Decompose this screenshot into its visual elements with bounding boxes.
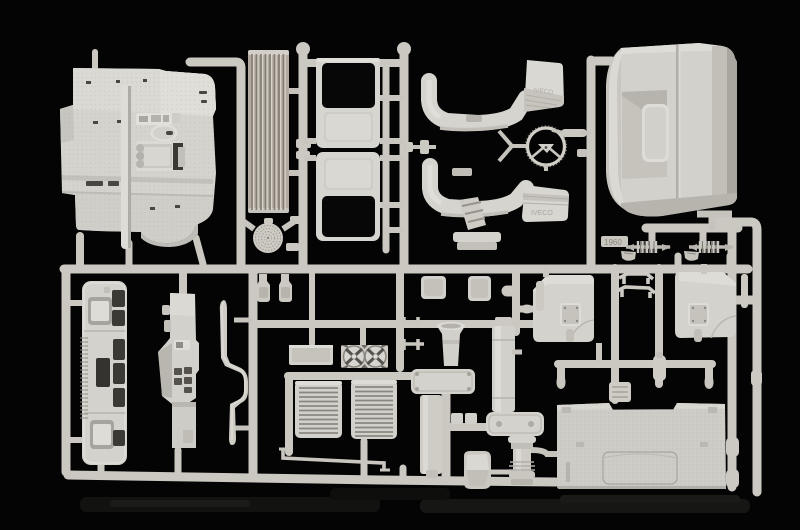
svg-text:1960: 1960 [604,238,622,247]
svg-text:IVECO: IVECO [531,210,553,217]
